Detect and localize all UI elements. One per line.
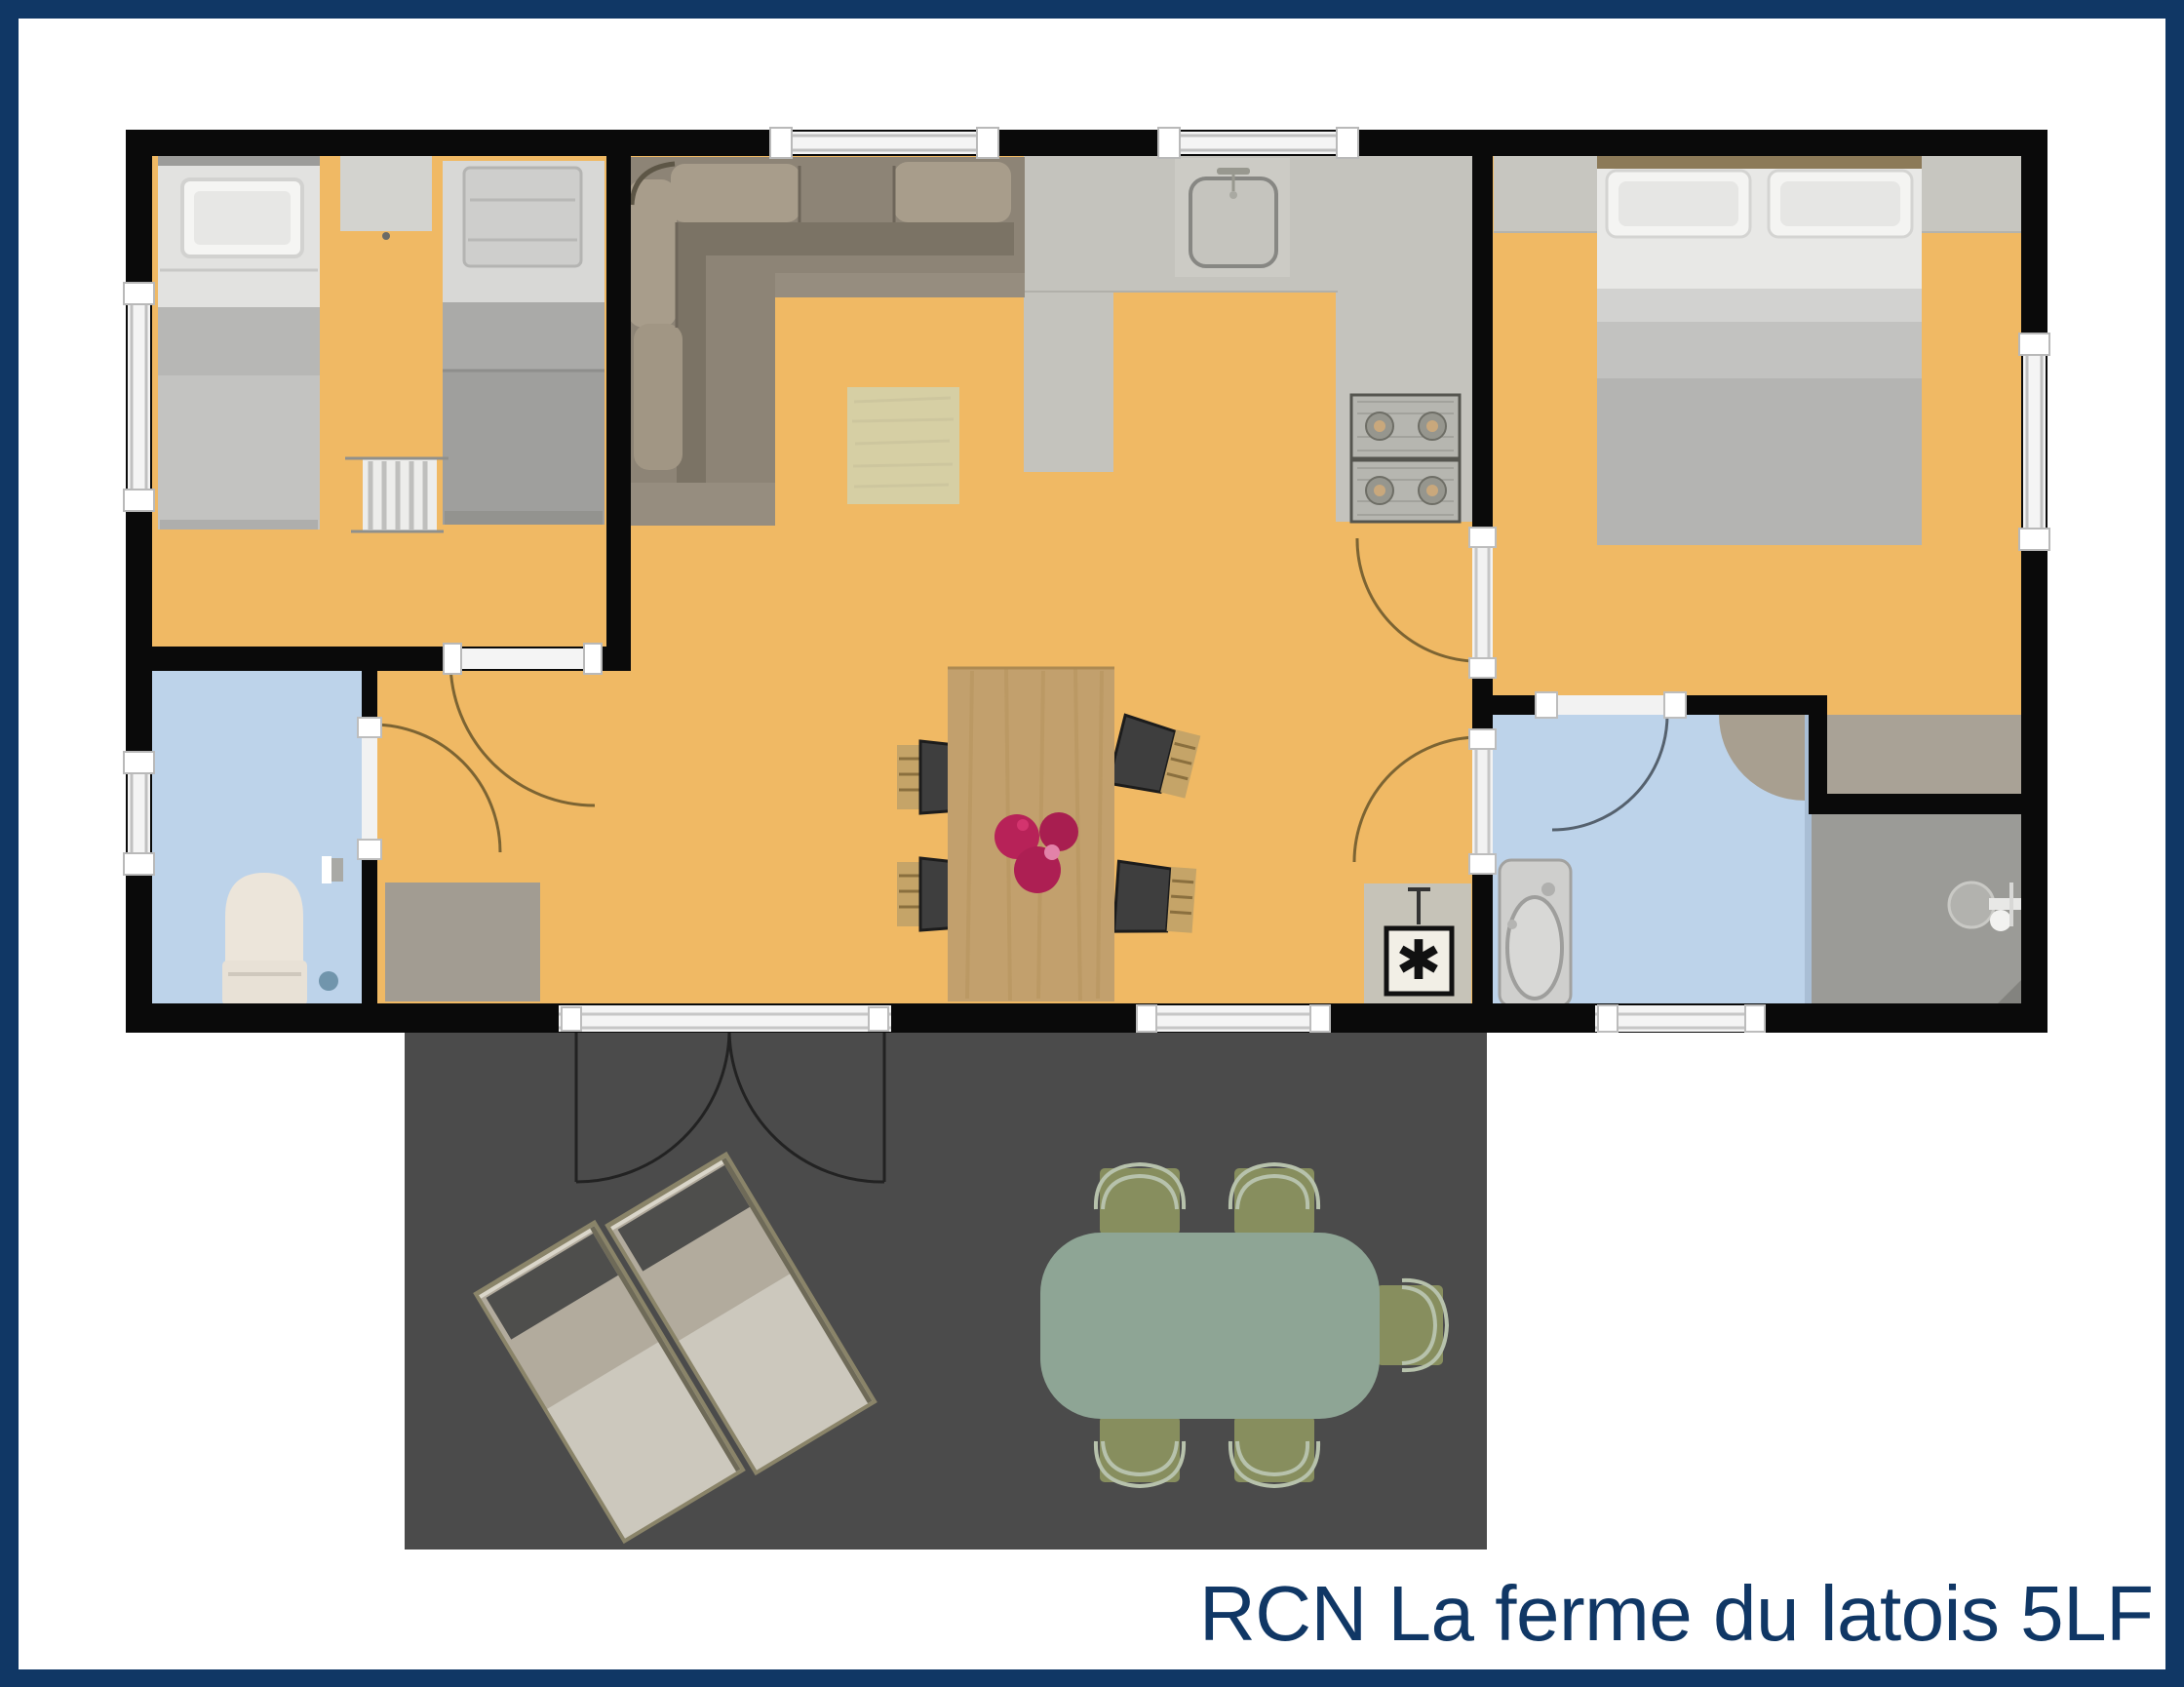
svg-text:RCN La ferme du latois 5LF: RCN La ferme du latois 5LF — [1199, 1570, 2154, 1657]
svg-text:✱: ✱ — [1396, 929, 1442, 991]
